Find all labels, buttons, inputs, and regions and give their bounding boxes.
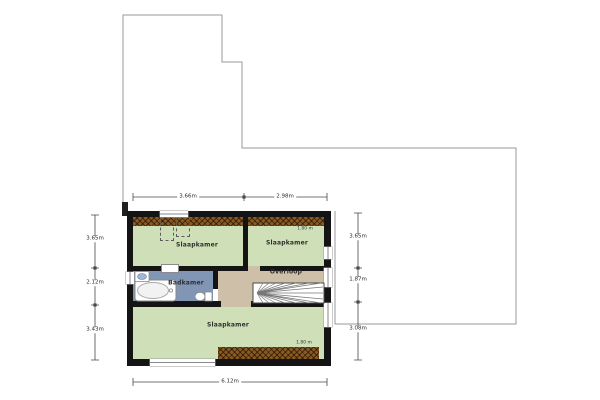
label-landing: Overloop	[270, 269, 302, 276]
dim-top-right: 2.98m	[274, 194, 296, 200]
label-bedroom-bottom: Slaapkamer	[207, 322, 249, 329]
floorplan-page: Slaapkamer Slaapkamer Badkamer Overloop …	[0, 0, 600, 400]
dim-top-left: 3.66m	[177, 194, 199, 200]
dim-right-middle: 1.87m	[347, 277, 369, 283]
dim-left-bottom: 3.43m	[84, 327, 106, 333]
toilet	[195, 292, 212, 301]
dim-left-middle: 2.12m	[84, 280, 106, 286]
sink	[135, 272, 149, 282]
dim-right-bottom: 3.08m	[347, 326, 369, 332]
headroom-note-top-right: 1.80 m	[297, 227, 313, 232]
dim-left-top: 3.65m	[84, 236, 106, 242]
headroom-note-bottom: 1.80 m	[296, 341, 312, 346]
label-bedroom-top-left: Slaapkamer	[176, 242, 218, 249]
label-bathroom: Badkamer	[168, 280, 204, 287]
dim-bottom-total: 6.12m	[219, 379, 241, 385]
label-bedroom-top-right: Slaapkamer	[266, 240, 308, 247]
dim-right-top: 3.65m	[347, 234, 369, 240]
staircase	[253, 283, 324, 303]
